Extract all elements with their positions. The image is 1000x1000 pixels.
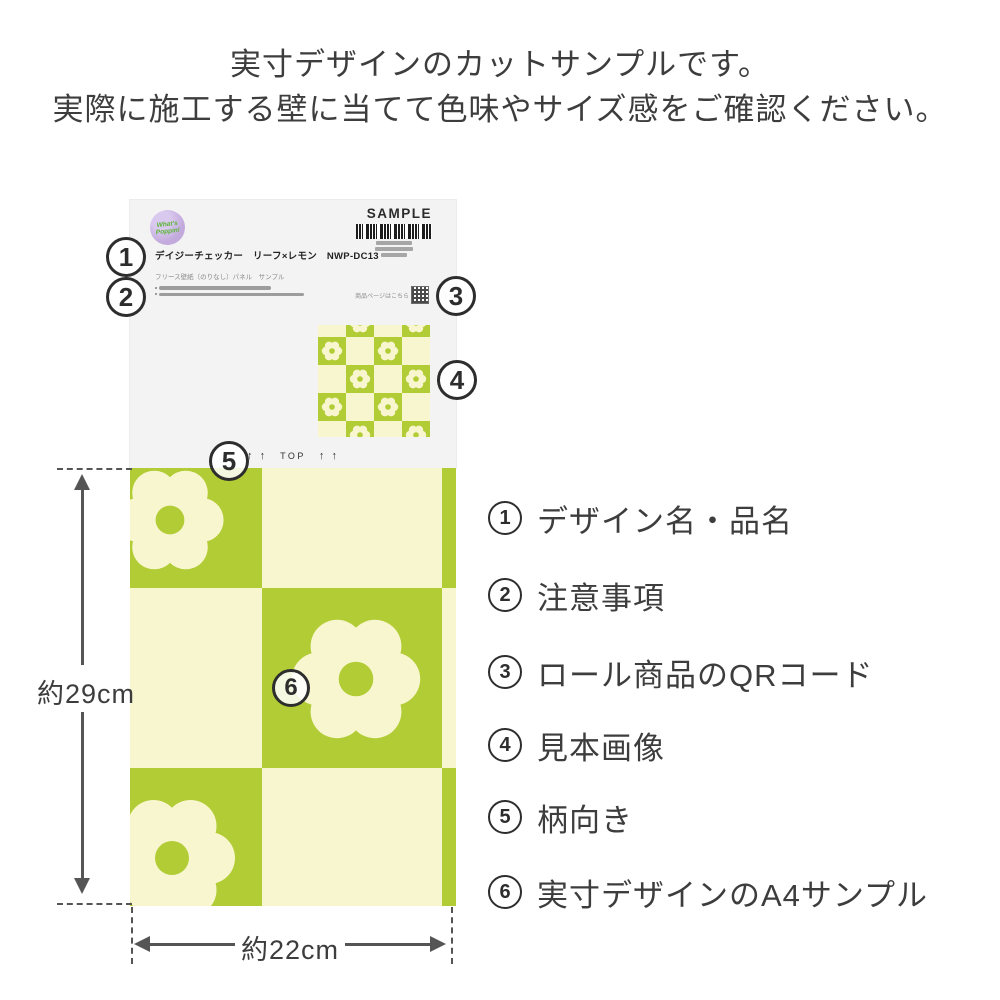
legend-number-badge: 4 xyxy=(488,728,522,762)
up-arrows-icon: ↑ ↑ xyxy=(247,450,267,462)
qr-block: 商品ページはこちら xyxy=(355,287,428,303)
callout-marker-3: 3 xyxy=(436,276,476,316)
legend-number-badge: 6 xyxy=(488,875,522,909)
legend-item-1: 1 デザイン名・品名 xyxy=(488,497,793,539)
legend-item-label: 注意事項 xyxy=(537,573,665,618)
legend-item-6: 6 実寸デザインのA4サンプル xyxy=(488,871,928,913)
legend-item-3: 3 ロール商品のQRコード xyxy=(488,651,874,693)
width-dimension-tick-right xyxy=(451,907,453,964)
page-title-line1: 実寸デザインのカットサンプルです。 xyxy=(0,42,1000,87)
width-arrow-right-icon xyxy=(430,936,446,952)
height-dimension-label: 約29cm xyxy=(26,672,146,711)
legend-number-badge: 5 xyxy=(488,800,522,834)
legend-item-2: 2 注意事項 xyxy=(488,574,665,616)
legend-number-badge: 2 xyxy=(488,578,522,612)
brand-badge-line2: Poppin! xyxy=(155,226,180,235)
height-dimension-tick-top xyxy=(57,468,132,470)
pattern-orientation-row: ↑ ↑ TOP ↑ ↑ xyxy=(130,450,456,462)
sample-word: SAMPLE xyxy=(367,206,432,221)
page-title-line2: 実際に施工する壁に当てて色味やサイズ感をご確認ください。 xyxy=(0,87,1000,132)
notice-placeholder-line xyxy=(155,286,304,290)
width-dimension-label: 約22cm xyxy=(235,928,345,967)
brand-badge-icon: What's Poppin! xyxy=(148,208,186,246)
sample-label-area: What's Poppin! SAMPLE デイジーチェッカー リーフ×レモン … xyxy=(130,200,456,468)
top-label: TOP xyxy=(280,451,306,461)
callout-marker-6: 6 xyxy=(272,669,310,707)
notice-placeholder xyxy=(155,286,304,296)
legend-item-label: 見本画像 xyxy=(537,723,665,768)
callout-marker-2: 2 xyxy=(106,277,146,317)
page-title: 実寸デザインのカットサンプルです。 実際に施工する壁に当てて色味やサイズ感をご確… xyxy=(0,42,1000,132)
height-arrow-down-icon xyxy=(74,878,90,894)
legend-number-badge: 1 xyxy=(488,501,522,535)
notice-placeholder-line xyxy=(155,293,304,297)
qr-caption: 商品ページはこちら xyxy=(355,291,409,300)
width-dimension-arrow xyxy=(345,943,431,946)
height-dimension-arrow xyxy=(81,487,84,665)
callout-marker-5: 5 xyxy=(209,441,249,481)
legend-item-5: 5 柄向き xyxy=(488,796,633,838)
height-dimension-arrow xyxy=(81,712,84,879)
legend-number-badge: 3 xyxy=(488,655,522,689)
width-arrow-left-icon xyxy=(134,936,150,952)
width-dimension-tick-left xyxy=(131,907,133,964)
legend-item-label: 柄向き xyxy=(537,795,633,840)
sample-card: What's Poppin! SAMPLE デイジーチェッカー リーフ×レモン … xyxy=(130,200,456,906)
qr-code-icon xyxy=(412,287,428,303)
legend-item-label: デザイン名・品名 xyxy=(537,496,793,541)
legend-item-label: ロール商品のQRコード xyxy=(537,650,874,695)
legend-item-label: 実寸デザインのA4サンプル xyxy=(537,870,928,915)
product-name: デイジーチェッカー リーフ×レモン NWP-DC13 xyxy=(155,248,379,262)
width-dimension-arrow xyxy=(149,943,235,946)
swatch-preview-image xyxy=(318,325,430,437)
up-arrows-icon: ↑ ↑ xyxy=(319,450,339,462)
callout-marker-1: 1 xyxy=(106,237,146,277)
legend-item-4: 4 見本画像 xyxy=(488,724,665,766)
product-subtitle: フリース壁紙（のりなし）パネル サンプル xyxy=(155,271,284,281)
barcode-icon xyxy=(356,224,432,239)
height-dimension-tick-bottom xyxy=(57,903,132,905)
callout-marker-4: 4 xyxy=(437,360,477,400)
